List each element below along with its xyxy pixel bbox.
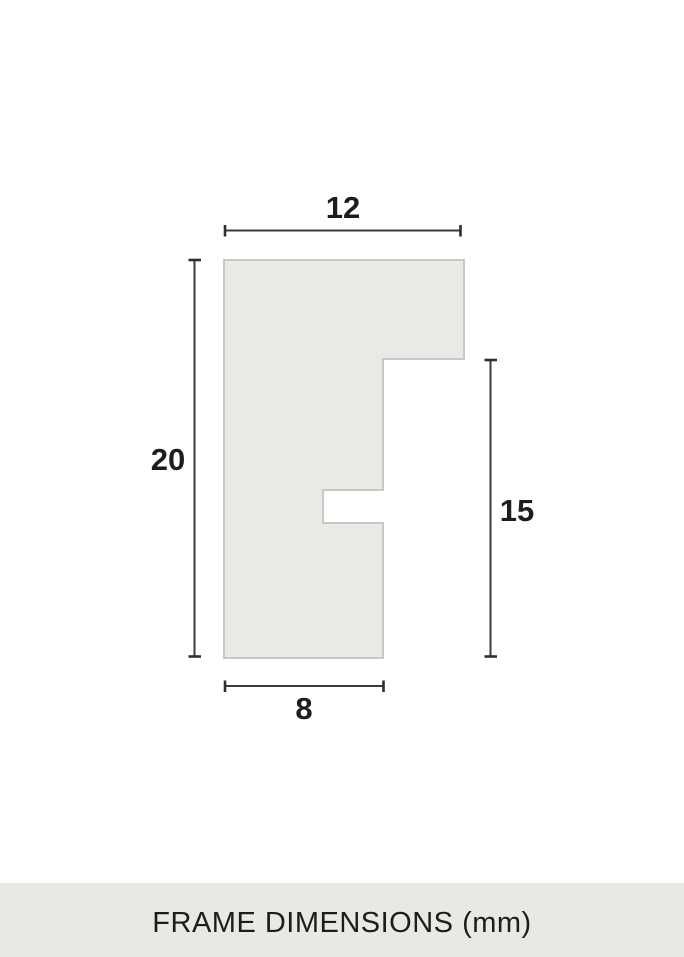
caption-bar: FRAME DIMENSIONS (mm) — [0, 883, 684, 957]
frame-profile-shape — [224, 260, 464, 658]
dim-label-left-height: 20 — [151, 442, 185, 477]
dim-label-bottom-width: 8 — [295, 691, 312, 726]
dim-label-right-height: 15 — [500, 493, 534, 528]
dimension-bottom-width: 8 — [225, 681, 384, 727]
caption-text: FRAME DIMENSIONS (mm) — [152, 907, 531, 940]
dimension-top-width: 12 — [225, 190, 461, 237]
dimension-left-height: 20 — [151, 260, 201, 657]
frame-profile-diagram: 12 20 15 8 — [0, 0, 684, 883]
dimension-right-height: 15 — [485, 360, 535, 657]
frame-dimensions-page: 12 20 15 8 FRAME DIMENSIONS (mm) — [0, 0, 684, 957]
dim-label-top-width: 12 — [326, 190, 360, 225]
